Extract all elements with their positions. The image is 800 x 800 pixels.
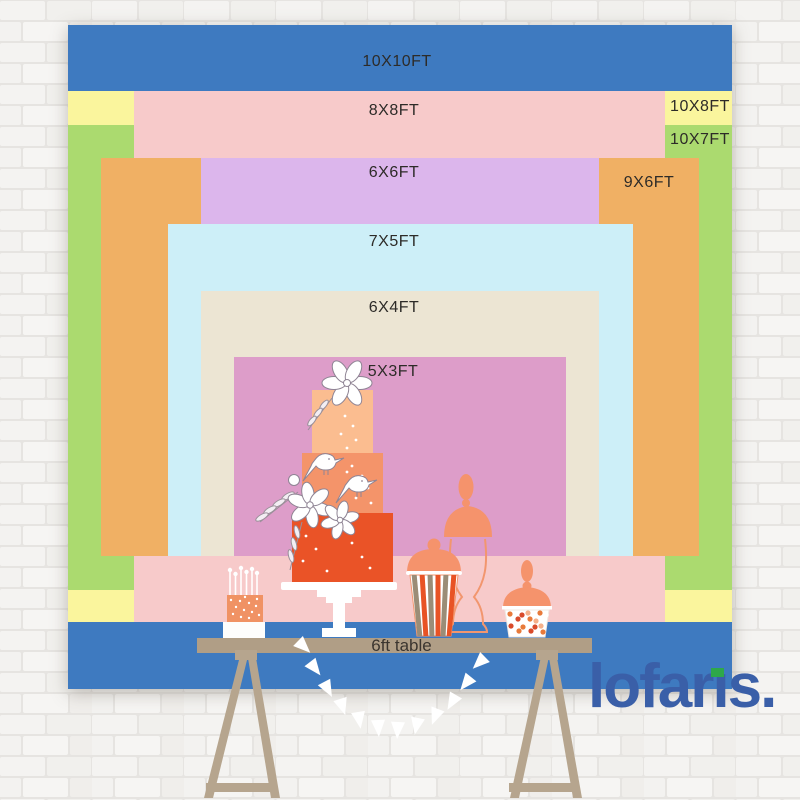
brand-logo-green-dot [711,668,724,677]
backdrop-size-chart-image: 10X10FT 8X8FT 10X8FT 10X7FT 6X6FT 9X6FT … [0,0,800,800]
bunting-garland [293,636,490,739]
table-trestle-left [204,650,280,798]
table-trestle-right [509,650,582,798]
brand-logo-i-char: ı [712,652,727,721]
brand-logo-pre: lofar [588,652,712,721]
brand-logo-i: ı [712,656,727,718]
brand-logo: lofarıs. [588,656,775,718]
brand-logo-post: s. [728,652,776,721]
